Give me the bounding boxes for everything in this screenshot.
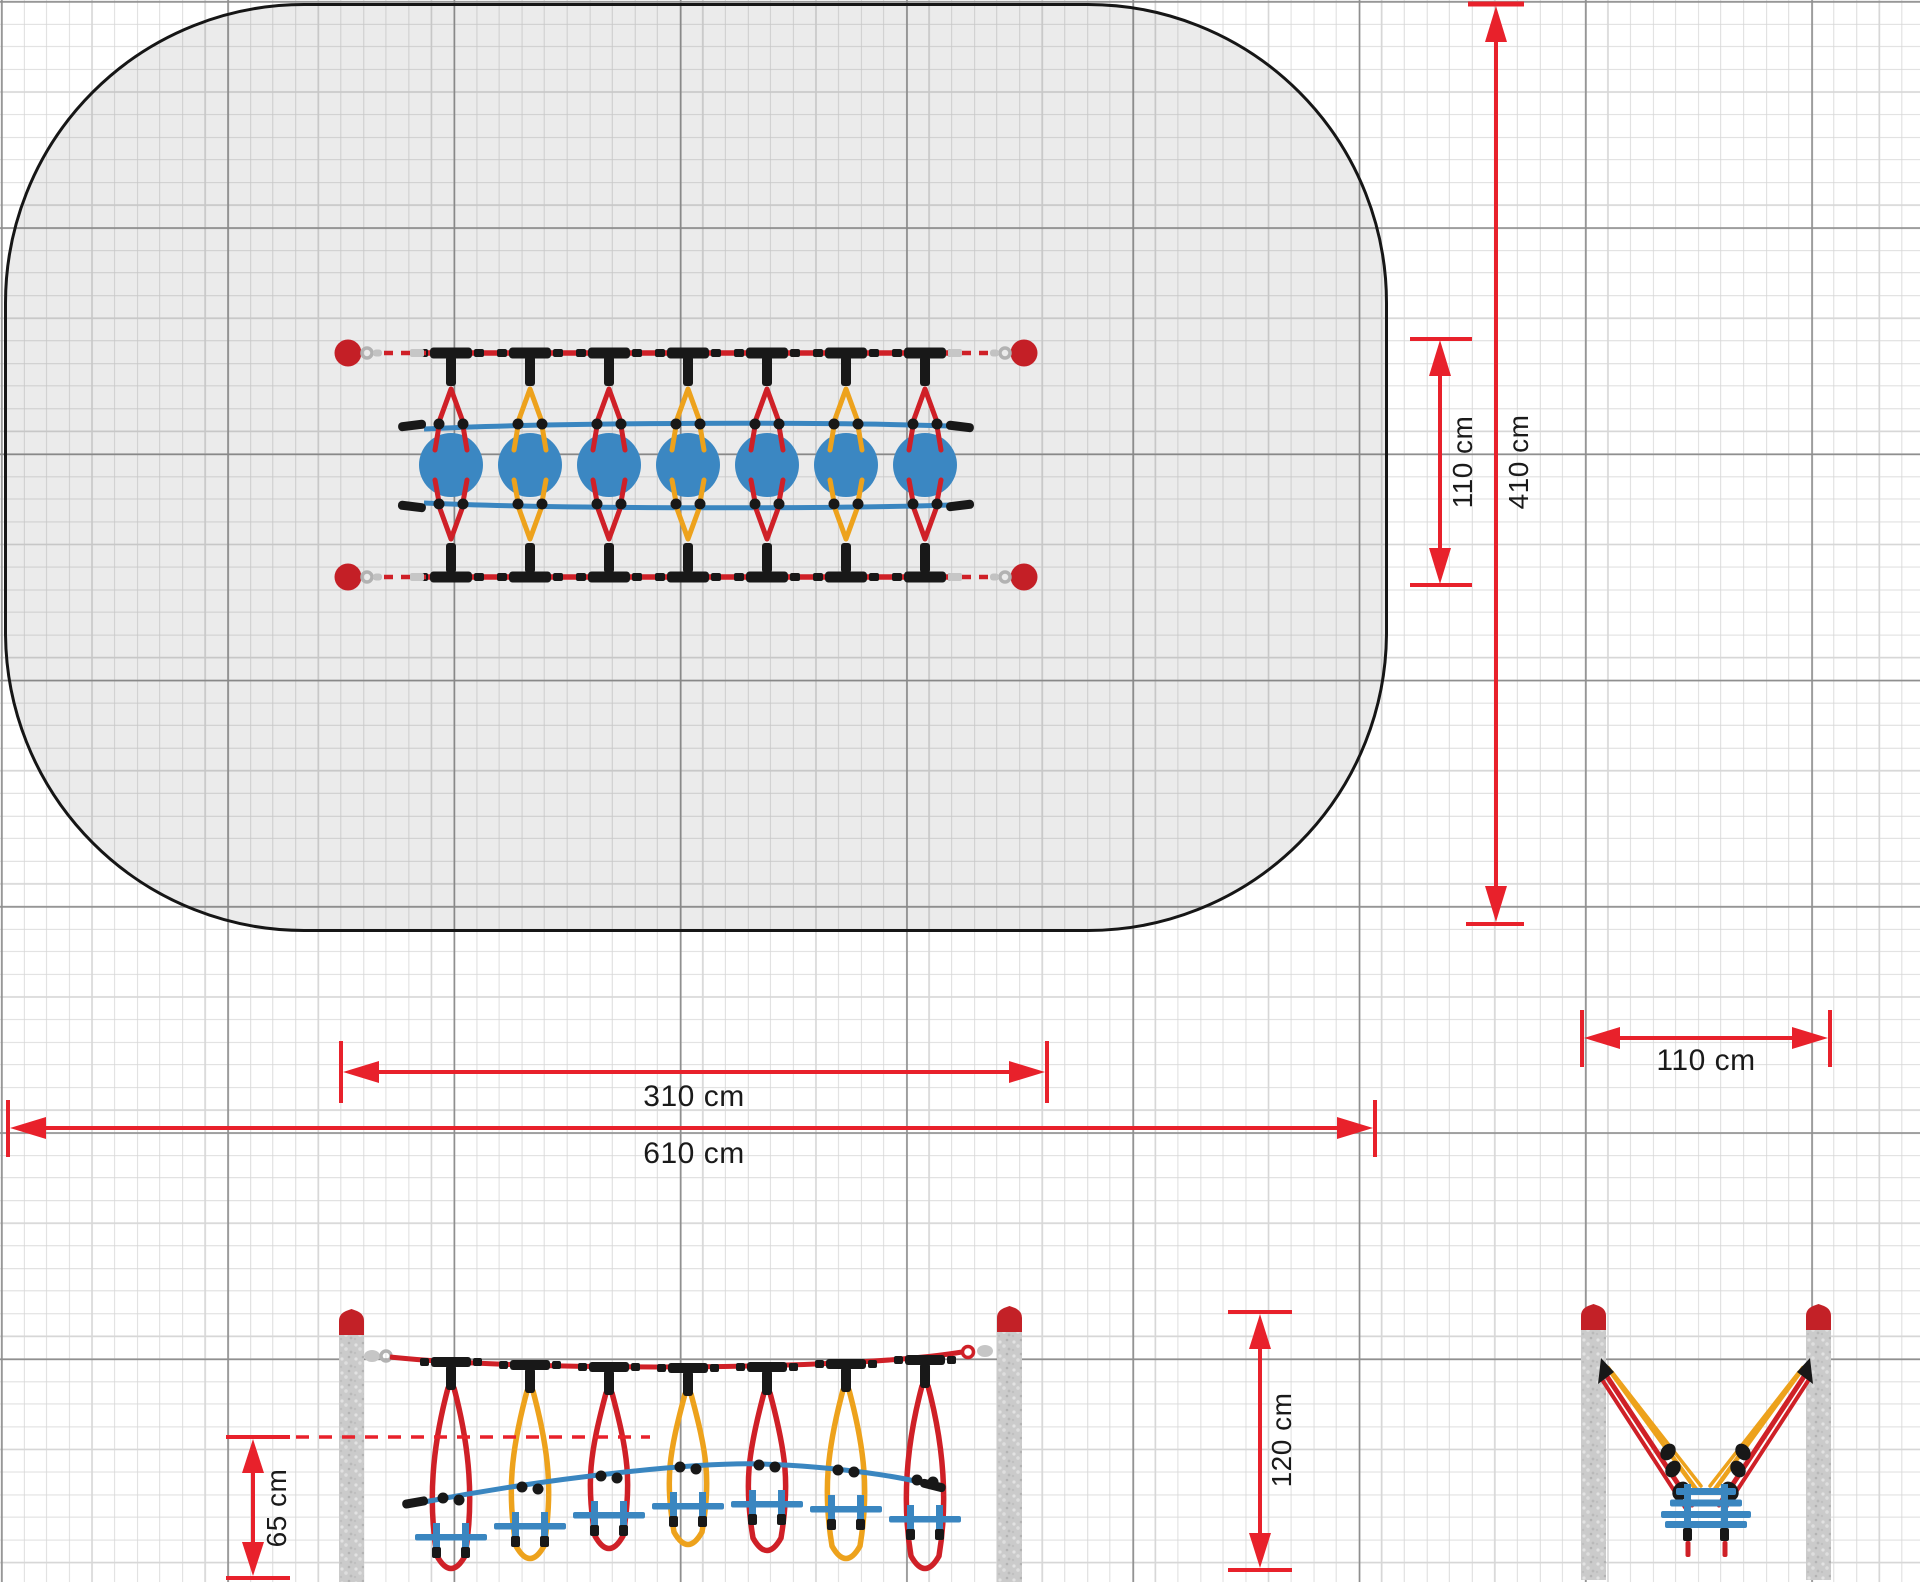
plan-rope-modules	[418, 348, 958, 583]
end-right-post	[1806, 1304, 1831, 1580]
front-seat-bar	[652, 1503, 724, 1510]
dim-label-post-height: 120 cm	[1266, 1393, 1298, 1488]
front-loop-rope	[906, 1386, 943, 1569]
dim-label-end-post-spacing: 110 cm	[1656, 1044, 1755, 1078]
front-right-post	[997, 1306, 1022, 1582]
end-left-post	[1581, 1304, 1606, 1580]
front-left-post	[339, 1309, 364, 1582]
technical-drawing-page: { "dimensions": { "plan_equipment_width"…	[0, 0, 1920, 1582]
drawing-canvas	[0, 0, 1920, 1582]
front-seat-bar	[494, 1523, 566, 1530]
front-elevation	[339, 1306, 1022, 1582]
dim-label-fall-height: 65 cm	[261, 1469, 293, 1548]
front-seat-bar	[415, 1534, 487, 1541]
dim-label-plan-equipment-width: 110 cm	[1447, 416, 1479, 509]
dim-label-safety-zone-length: 610 cm	[643, 1137, 744, 1171]
front-loop-rope	[748, 1393, 785, 1551]
end-elevation	[1581, 1304, 1831, 1580]
front-seat-bar	[889, 1516, 961, 1523]
dim-label-equipment-length: 310 cm	[643, 1080, 744, 1114]
front-rope-modules	[402, 1355, 961, 1569]
plan-view	[335, 340, 1038, 591]
dimension-annotations	[8, 4, 1830, 1578]
front-seat-bar	[573, 1512, 645, 1519]
front-seat-bar	[810, 1506, 882, 1513]
front-seat-bar	[731, 1501, 803, 1508]
dim-label-safety-zone-height: 410 cm	[1503, 415, 1535, 510]
